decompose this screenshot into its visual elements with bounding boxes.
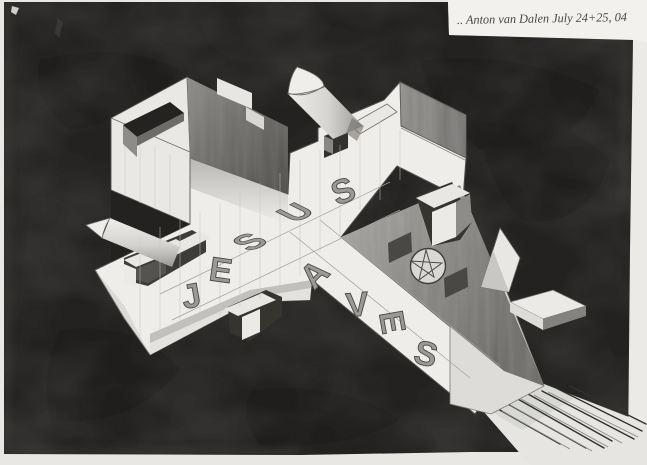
svg-text:.. Anton van Dalen July 24+25: .. Anton van Dalen July 24+25, 04 (457, 10, 627, 27)
svg-text:V: V (344, 285, 370, 325)
